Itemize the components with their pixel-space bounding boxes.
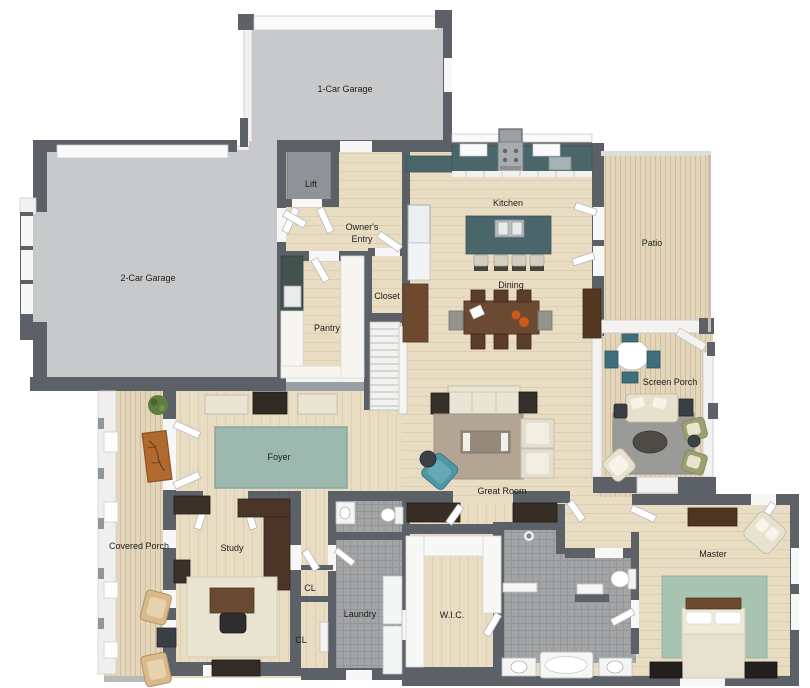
- svg-text:Patio: Patio: [642, 238, 663, 248]
- svg-text:1-Car Garage: 1-Car Garage: [317, 84, 372, 94]
- svg-text:Closet: Closet: [374, 291, 400, 301]
- svg-text:Entry: Entry: [351, 234, 373, 244]
- svg-text:Lift: Lift: [305, 179, 318, 189]
- svg-text:Kitchen: Kitchen: [493, 198, 523, 208]
- svg-text:W.I.C.: W.I.C.: [440, 610, 465, 620]
- svg-text:2-Car Garage: 2-Car Garage: [120, 273, 175, 283]
- svg-text:Great Room: Great Room: [477, 486, 526, 496]
- svg-text:Master: Master: [699, 549, 727, 559]
- svg-text:Pantry: Pantry: [314, 323, 341, 333]
- svg-text:Owner's: Owner's: [346, 222, 379, 232]
- svg-text:CL: CL: [304, 583, 316, 593]
- svg-text:Dining: Dining: [498, 280, 524, 290]
- svg-text:Covered Porch: Covered Porch: [109, 541, 169, 551]
- svg-text:Study: Study: [220, 543, 244, 553]
- svg-text:CL: CL: [295, 635, 307, 645]
- svg-text:Laundry: Laundry: [344, 609, 377, 619]
- svg-text:Foyer: Foyer: [267, 452, 290, 462]
- svg-text:Screen Porch: Screen Porch: [643, 377, 698, 387]
